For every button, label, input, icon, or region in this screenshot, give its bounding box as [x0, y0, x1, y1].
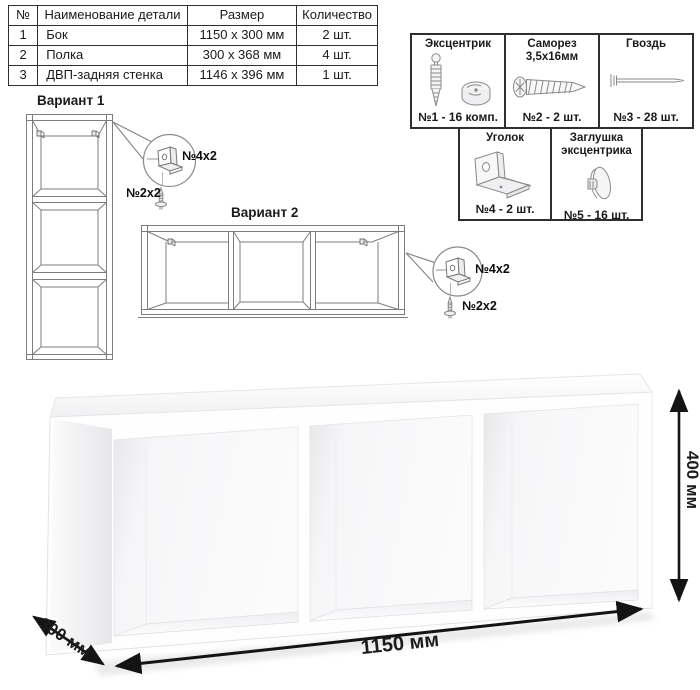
assembly-instruction-sheet: № Наименование детали Размер Количество … — [0, 0, 700, 690]
diagram-artwork — [0, 0, 700, 690]
screw-icon — [445, 297, 456, 319]
variant2-title: Вариант 2 — [231, 205, 298, 220]
variant1-drawing — [27, 115, 113, 360]
variant2-drawing — [138, 226, 408, 318]
callout1-screw-label: №2х2 — [126, 186, 161, 200]
variant1-title: Вариант 1 — [37, 93, 104, 108]
callout2-bracket-label: №4х2 — [475, 262, 510, 276]
height-dimension-label: 400 мм — [682, 440, 700, 520]
callout1-bracket-label: №4х2 — [182, 149, 217, 163]
bracket-marker-icon — [92, 131, 99, 138]
shelf-3d-render — [46, 374, 655, 676]
callout2-screw-label: №2х2 — [462, 299, 497, 313]
